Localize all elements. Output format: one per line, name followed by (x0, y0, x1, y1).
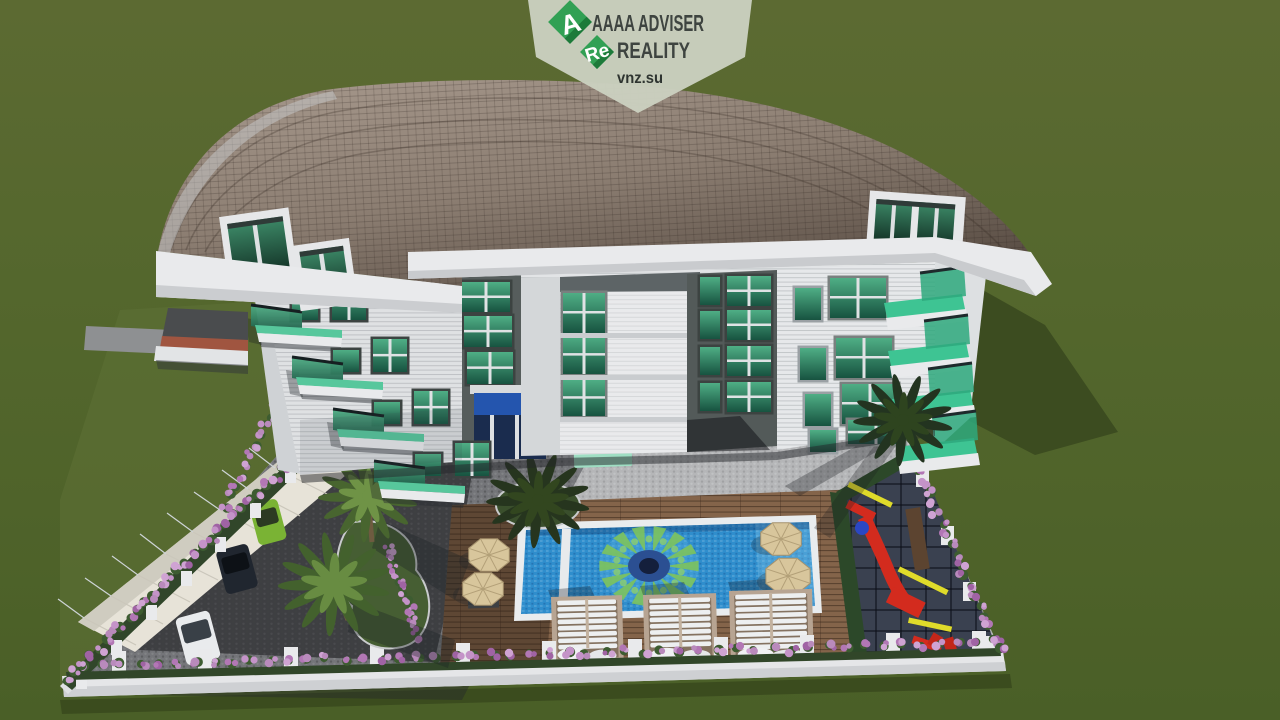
svg-text:vnz.su: vnz.su (617, 70, 663, 87)
svg-text:AAAA ADVISER: AAAA ADVISER (592, 10, 704, 36)
svg-text:REALITY: REALITY (617, 38, 690, 63)
